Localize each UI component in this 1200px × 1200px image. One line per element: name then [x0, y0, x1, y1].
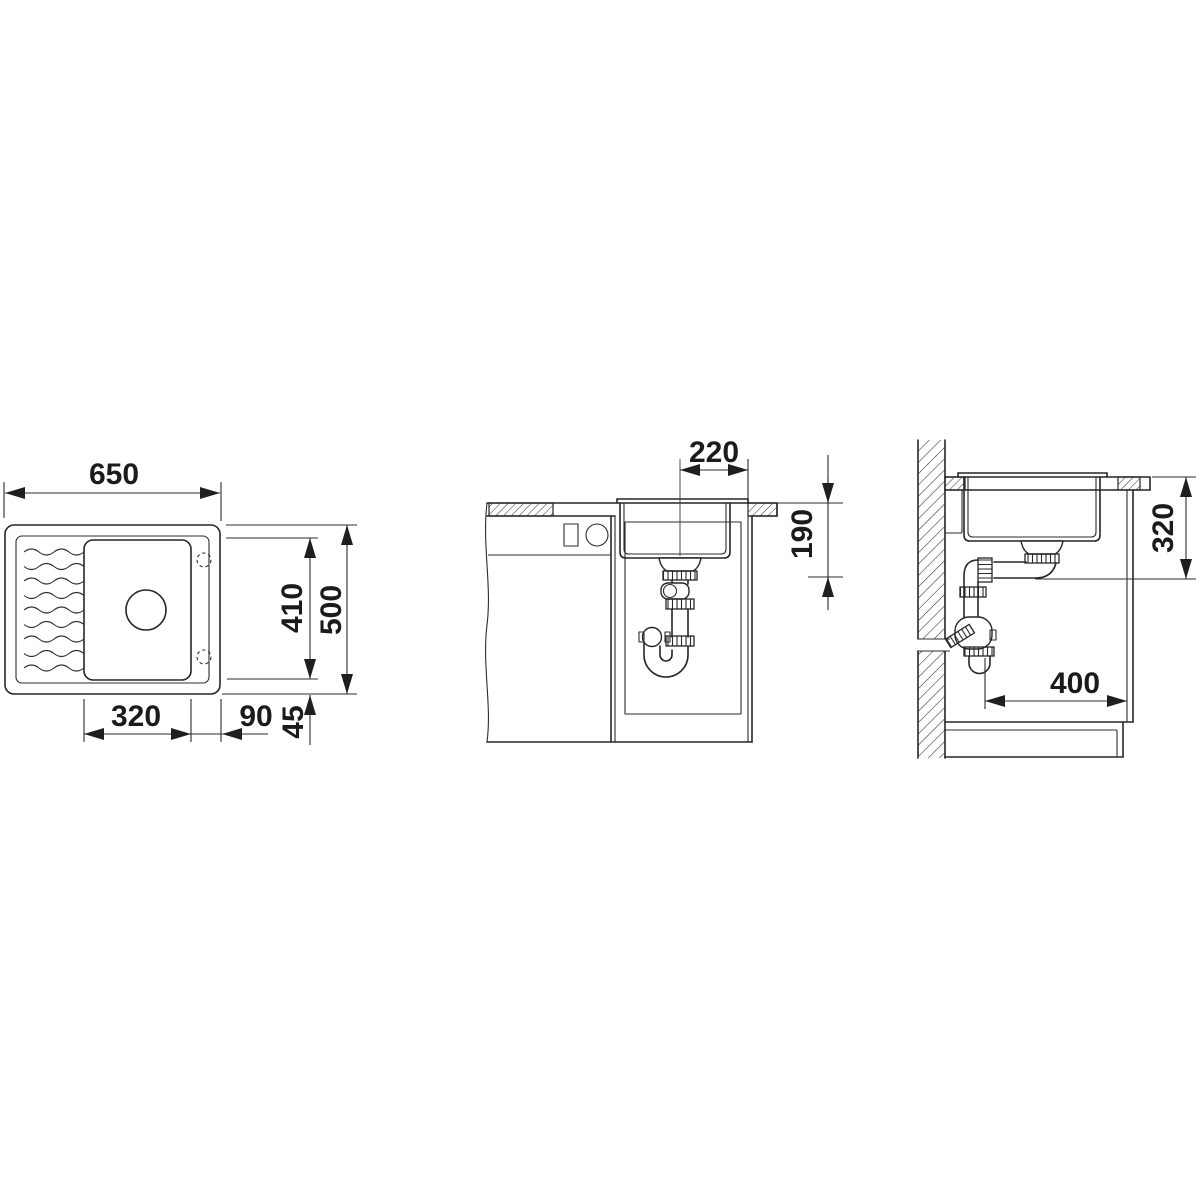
countertop-side [945, 477, 1150, 490]
dim-rim-margin-label: 45 [277, 705, 310, 738]
dim-drain-offset-label: 220 [689, 436, 739, 469]
bowl-section-side [964, 477, 1100, 541]
dim-drain-offset: 220 [680, 436, 748, 499]
dim-inner-depth: 410 [226, 538, 318, 679]
technical-drawing-svg: 650 500 410 320 90 [0, 0, 1200, 1200]
dim-outlet-height: 320 [1035, 477, 1196, 579]
top-view: 650 500 410 320 90 [4, 458, 357, 745]
wall-outlet-hole [917, 639, 950, 651]
dim-bowl-depth: 190 [777, 455, 843, 610]
sink-rim-inner [16, 536, 209, 683]
dim-bowl-to-edge-label: 90 [239, 700, 272, 733]
drainboard-waves [24, 549, 84, 671]
bowl-section [620, 503, 730, 558]
dim-bowl-to-edge: 90 [222, 700, 273, 734]
front-section: 220 190 [486, 436, 843, 742]
wall-hatch [918, 440, 945, 758]
counter-hatch-left [489, 503, 553, 516]
dim-outlet-height-label: 320 [1147, 503, 1180, 553]
dim-bowl-width-label: 320 [111, 700, 161, 733]
countertop [487, 503, 777, 516]
break-line [486, 503, 489, 742]
side-section: 320 400 [917, 440, 1196, 758]
dim-bowl-depth-label: 190 [786, 509, 819, 559]
back-rail [945, 490, 962, 533]
strainer-side [1021, 541, 1063, 563]
dim-width: 650 [4, 458, 221, 521]
trap [639, 580, 694, 677]
front-symbol-rect [564, 524, 578, 546]
bowl [84, 540, 191, 680]
dim-depth-label: 500 [315, 585, 348, 635]
left-cabinet [488, 524, 611, 555]
counter-hatch-right [748, 503, 777, 516]
cabinet-door-inset [625, 522, 741, 714]
front-symbol-circle [586, 524, 608, 546]
dim-wall-clearance: 400 [985, 658, 1127, 709]
dim-width-label: 650 [89, 458, 139, 491]
strainer [659, 558, 701, 580]
sink-installation-drawing: 650 500 410 320 90 [0, 0, 1200, 1200]
wall [918, 440, 945, 758]
dim-inner-depth-label: 410 [276, 583, 309, 633]
dim-wall-clearance-label: 400 [1050, 667, 1100, 700]
plinth [945, 722, 1123, 757]
drain-hole [126, 590, 166, 630]
dim-rim-margin: 45 [277, 695, 310, 745]
trap-bottom-cap [969, 656, 990, 673]
